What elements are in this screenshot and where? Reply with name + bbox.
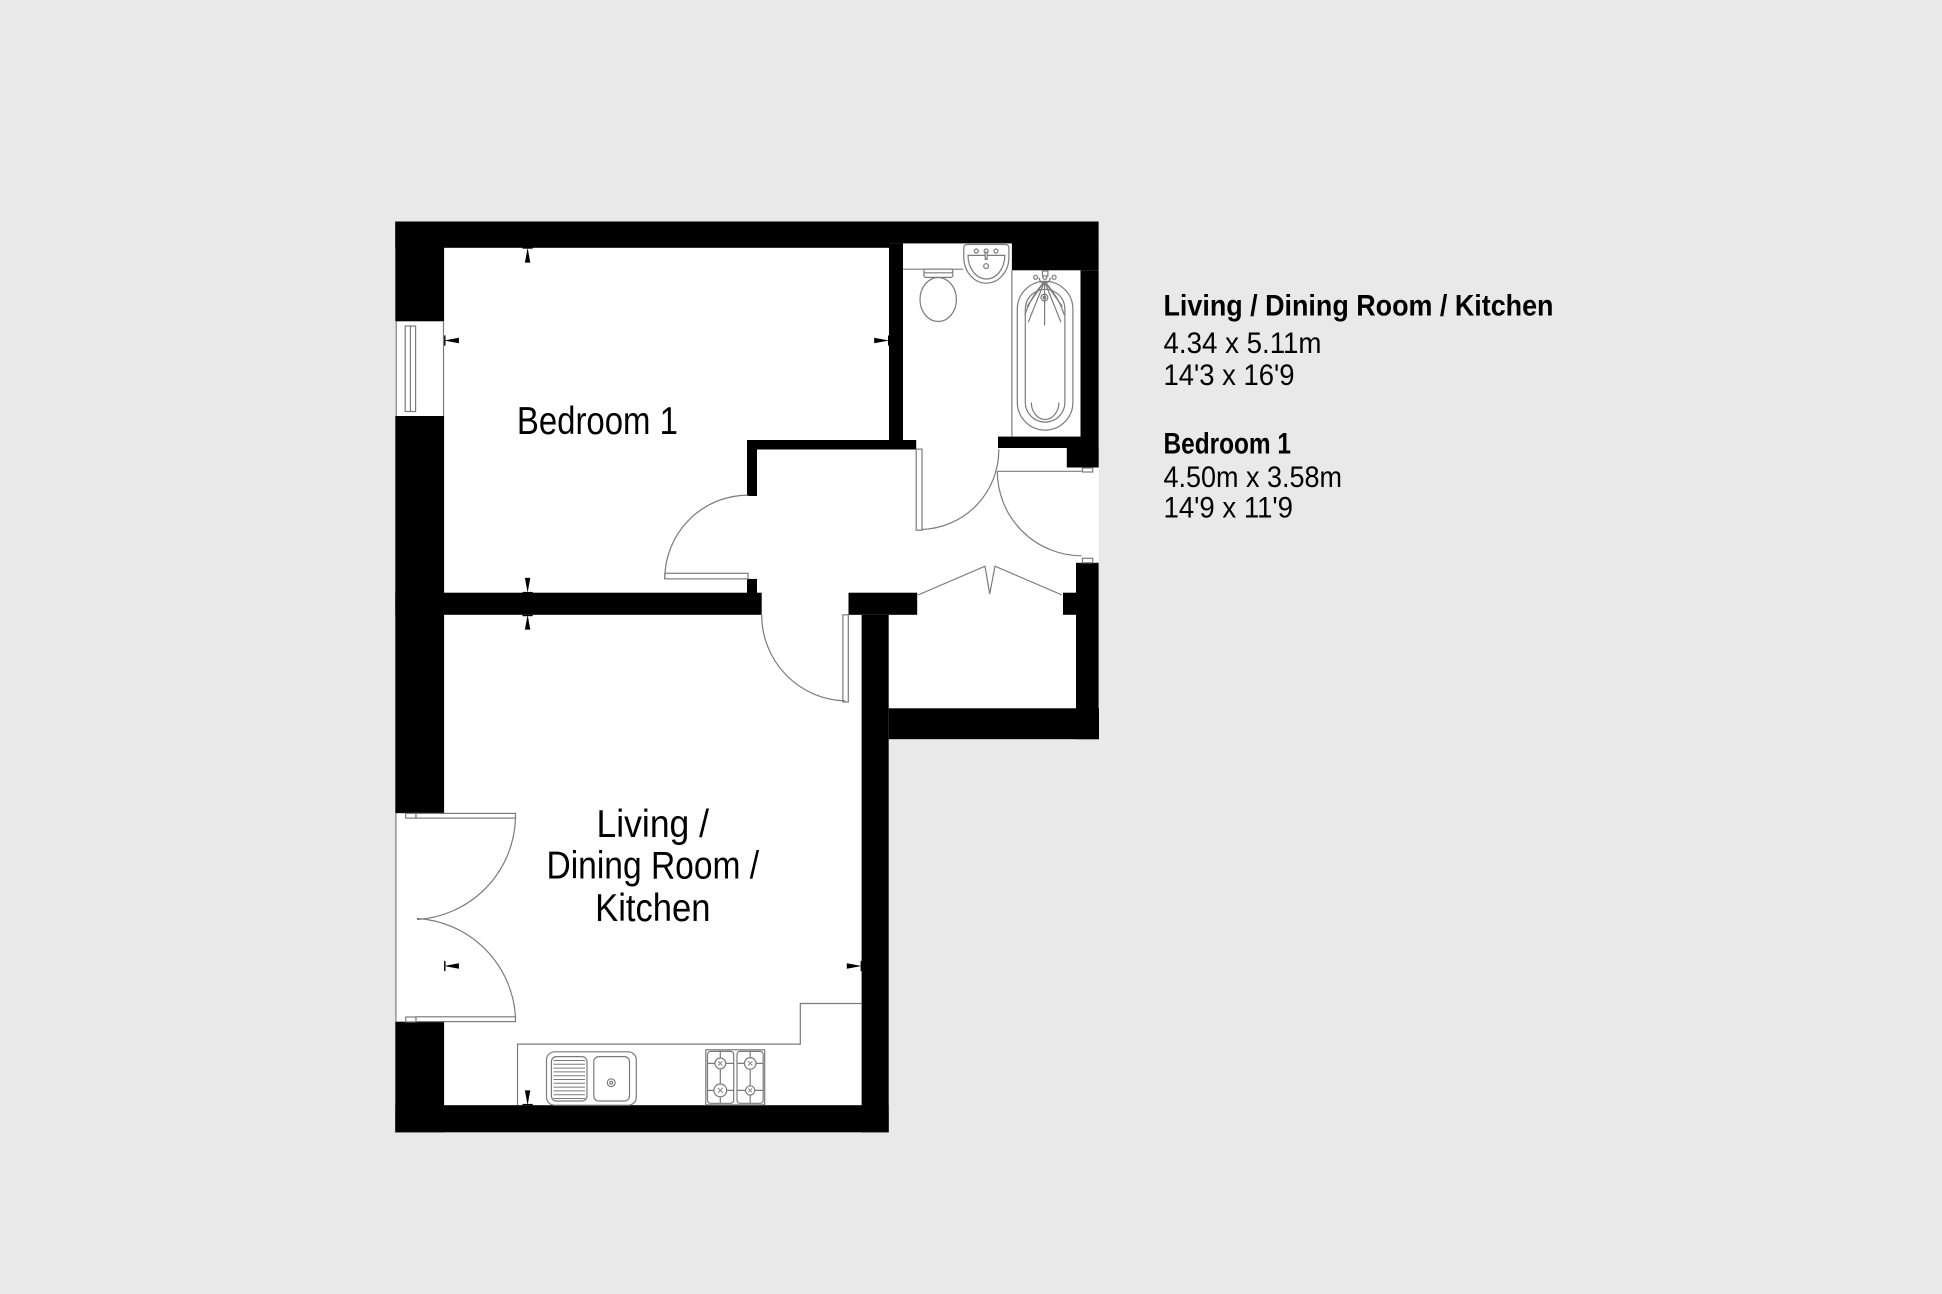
svg-text:14'3 x 16'9: 14'3 x 16'9: [1164, 359, 1295, 392]
svg-text:Dining Room /: Dining Room /: [547, 845, 760, 888]
svg-text:Living /: Living /: [597, 803, 710, 846]
svg-text:4.34 x 5.11m: 4.34 x 5.11m: [1164, 327, 1322, 360]
svg-text:Bedroom 1: Bedroom 1: [1164, 428, 1292, 461]
svg-text:Bedroom 1: Bedroom 1: [517, 400, 678, 443]
svg-text:14'9 x 11'9: 14'9 x 11'9: [1164, 492, 1294, 525]
svg-text:Kitchen: Kitchen: [595, 887, 710, 930]
svg-text:4.50m x 3.58m: 4.50m x 3.58m: [1164, 461, 1343, 494]
svg-text:Living / Dining Room / Kitchen: Living / Dining Room / Kitchen: [1164, 290, 1554, 323]
